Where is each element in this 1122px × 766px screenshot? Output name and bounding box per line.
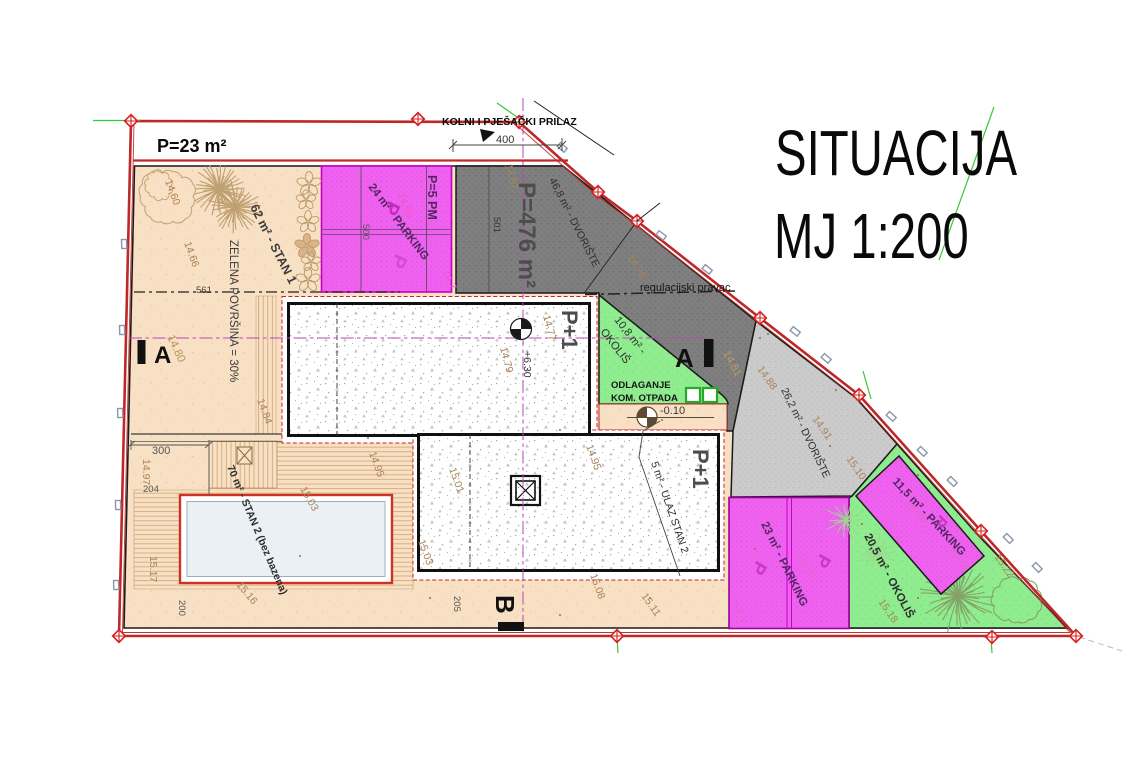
- svg-text:14.97: 14.97: [140, 459, 152, 485]
- svg-text:SITUACIJA: SITUACIJA: [775, 117, 1017, 189]
- svg-text:ODLAGANJE: ODLAGANJE: [611, 380, 671, 391]
- svg-text:A: A: [675, 343, 694, 373]
- svg-text:ZELENA POVRŠINA = 30%: ZELENA POVRŠINA = 30%: [227, 240, 240, 382]
- svg-text:-0.10: -0.10: [660, 405, 685, 417]
- svg-text:P+1: P+1: [557, 310, 582, 350]
- svg-text:205: 205: [451, 596, 462, 612]
- svg-text:B: B: [490, 595, 520, 614]
- svg-text:15.17: 15.17: [147, 556, 159, 582]
- svg-text:300: 300: [152, 445, 170, 457]
- svg-text:P=23 m²: P=23 m²: [157, 136, 227, 156]
- svg-text:P=476 m²: P=476 m²: [513, 182, 540, 288]
- svg-text:P+1: P+1: [688, 449, 713, 489]
- svg-text:200: 200: [176, 600, 187, 616]
- svg-text:KOM. OTPADA: KOM. OTPADA: [611, 393, 678, 404]
- svg-text:501: 501: [491, 217, 502, 233]
- svg-text:+6.30: +6.30: [521, 351, 533, 378]
- svg-text:400: 400: [496, 134, 514, 146]
- svg-text:regulacijski pravac: regulacijski pravac: [640, 282, 731, 294]
- svg-text:MJ 1:200: MJ 1:200: [774, 200, 969, 272]
- svg-text:204: 204: [143, 484, 159, 495]
- svg-text:561: 561: [196, 285, 212, 296]
- svg-text:P=5 PM: P=5 PM: [425, 175, 439, 220]
- svg-text:KOLNI I PJEŠAČKI PRILAZ: KOLNI I PJEŠAČKI PRILAZ: [442, 115, 577, 128]
- svg-text:500: 500: [360, 224, 371, 240]
